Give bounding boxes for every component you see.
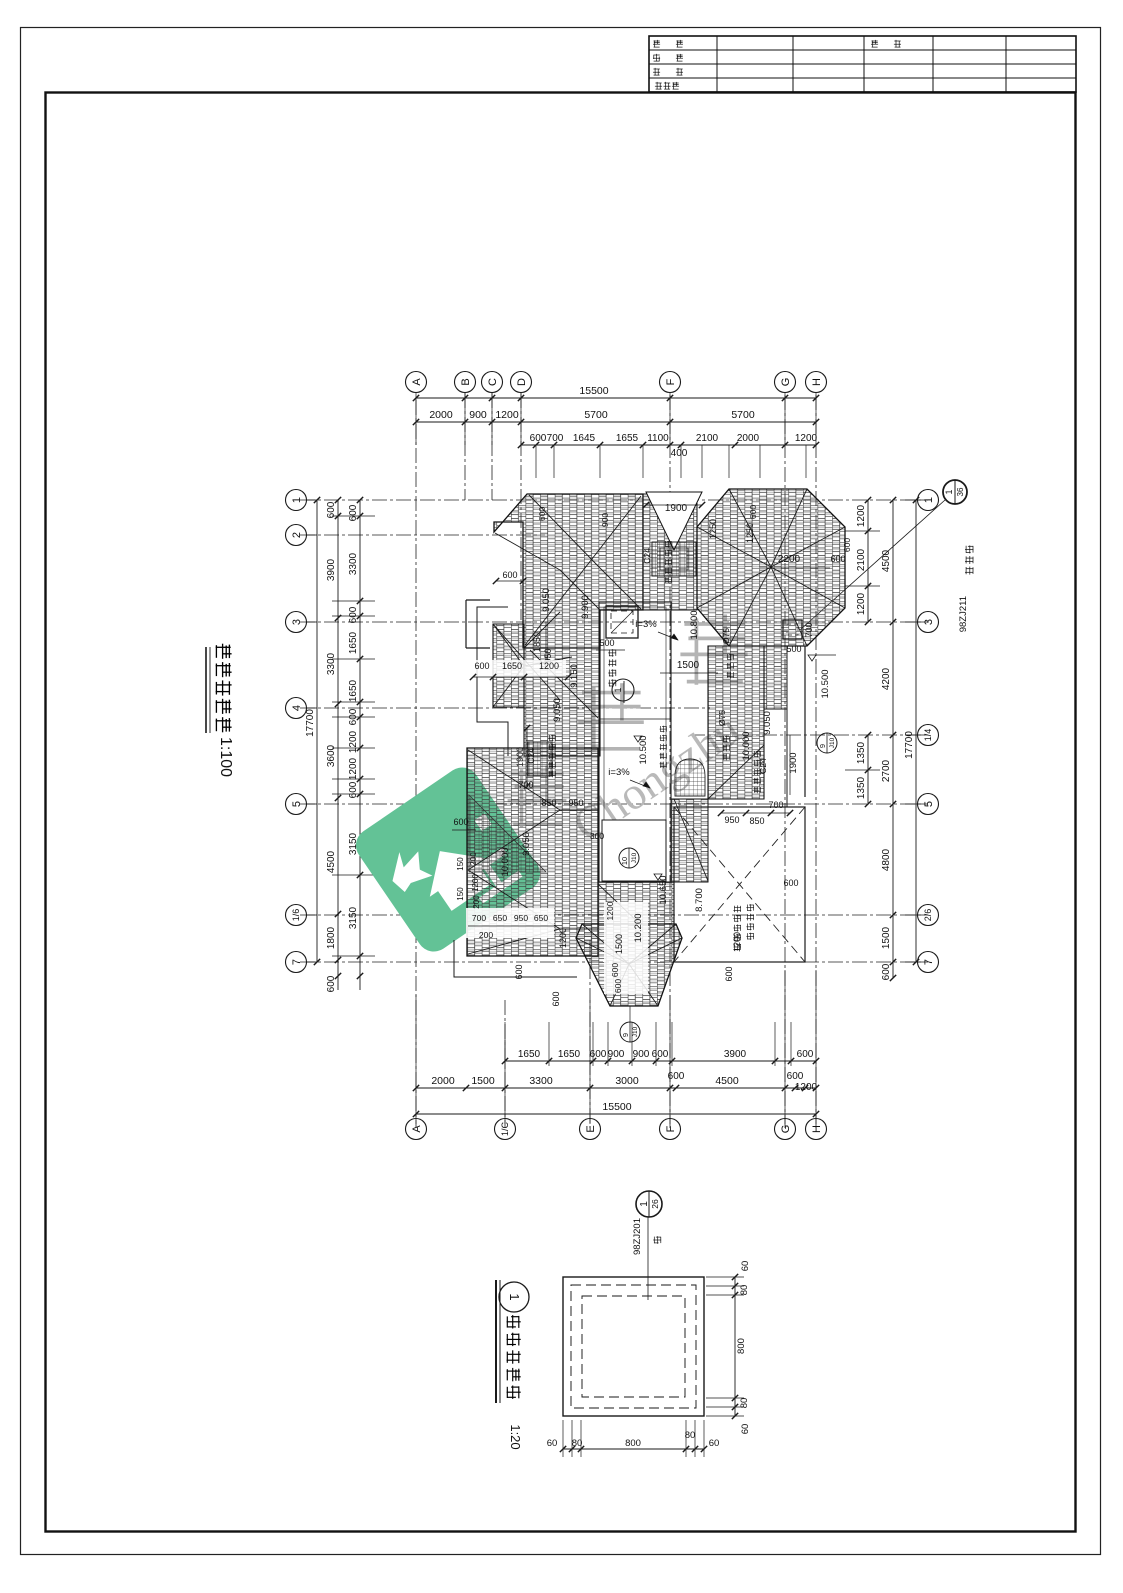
svg-text:J10: J10	[631, 852, 638, 863]
svg-text:600: 600	[783, 878, 798, 888]
svg-text:900: 900	[633, 1049, 650, 1060]
svg-text:5: 5	[291, 801, 303, 807]
svg-text:36: 36	[956, 487, 965, 496]
svg-text:3: 3	[291, 619, 303, 625]
svg-text:950: 950	[568, 798, 583, 808]
svg-text:600: 600	[514, 964, 524, 979]
svg-text:1:20: 1:20	[508, 1424, 523, 1449]
svg-text:Ø75: Ø75	[721, 628, 731, 644]
svg-text:200: 200	[472, 895, 481, 909]
svg-text:3150: 3150	[348, 906, 359, 929]
svg-text:600: 600	[502, 570, 517, 580]
svg-text:600: 600	[348, 504, 359, 521]
svg-text:4500: 4500	[881, 549, 892, 572]
svg-text:3300: 3300	[348, 552, 359, 575]
svg-text:1: 1	[944, 489, 954, 494]
svg-text:850: 850	[749, 816, 764, 826]
svg-text:900: 900	[469, 409, 487, 421]
svg-text:400: 400	[671, 448, 688, 459]
svg-text:4800: 4800	[881, 848, 892, 871]
svg-text:7: 7	[291, 959, 303, 965]
svg-text:15500: 15500	[579, 385, 608, 397]
svg-text:3300: 3300	[529, 1075, 553, 1087]
svg-text:1650: 1650	[558, 1049, 581, 1060]
svg-text:i=3%: i=3%	[635, 619, 657, 630]
svg-text:2100: 2100	[696, 433, 719, 444]
svg-text:2: 2	[291, 532, 303, 538]
svg-text:4200: 4200	[881, 667, 892, 690]
svg-text:4500: 4500	[715, 1075, 739, 1087]
svg-text:9.050: 9.050	[762, 711, 773, 735]
svg-text:1200: 1200	[856, 504, 867, 527]
svg-text:10.200: 10.200	[633, 913, 644, 942]
svg-text:600: 600	[797, 1049, 814, 1060]
svg-text:1200: 1200	[856, 592, 867, 615]
svg-text:C24: C24	[642, 548, 652, 564]
svg-text:900: 900	[608, 1049, 625, 1060]
svg-text:1650: 1650	[502, 661, 522, 671]
svg-text:10.500: 10.500	[820, 669, 831, 698]
svg-text:H: H	[811, 1125, 823, 1133]
svg-text:150: 150	[456, 887, 465, 901]
svg-text:1250: 1250	[745, 523, 755, 543]
svg-text:650: 650	[493, 913, 507, 923]
svg-text:1200: 1200	[348, 730, 359, 753]
svg-text:800: 800	[736, 1338, 747, 1354]
svg-text:1: 1	[613, 687, 623, 692]
svg-text:850: 850	[541, 798, 556, 808]
svg-text:2700: 2700	[881, 759, 892, 782]
svg-text:10.000: 10.000	[500, 847, 511, 876]
svg-text:500: 500	[599, 638, 614, 648]
svg-text:10.000: 10.000	[741, 731, 752, 760]
svg-text:F: F	[665, 378, 677, 385]
svg-text:98ZJ201: 98ZJ201	[632, 1218, 643, 1255]
svg-text:1500: 1500	[471, 1075, 495, 1087]
svg-text:9.900: 9.900	[580, 595, 591, 619]
svg-text:G: G	[780, 378, 792, 387]
svg-text:700: 700	[472, 913, 486, 923]
svg-text:600: 600	[474, 661, 489, 671]
svg-text:1655: 1655	[616, 433, 639, 444]
svg-text:3300: 3300	[326, 652, 337, 675]
svg-text:J10: J10	[829, 737, 836, 748]
svg-text:B: B	[460, 378, 472, 385]
svg-text:600: 600	[348, 781, 359, 798]
svg-text:1200: 1200	[348, 757, 359, 780]
svg-text:1200: 1200	[605, 901, 615, 920]
svg-text:3900: 3900	[724, 1049, 747, 1060]
svg-text:200: 200	[469, 852, 478, 866]
svg-text:10: 10	[620, 857, 629, 865]
svg-text:G: G	[780, 1125, 792, 1134]
svg-text:Ø75: Ø75	[717, 710, 727, 726]
svg-text:A: A	[411, 378, 423, 386]
svg-text:600: 600	[453, 817, 468, 827]
svg-text:60: 60	[709, 1438, 720, 1449]
svg-text:60: 60	[547, 1438, 558, 1449]
svg-text:1500: 1500	[614, 934, 624, 954]
svg-text:600: 600	[610, 963, 620, 977]
svg-text:5700: 5700	[731, 409, 755, 421]
svg-text:1200: 1200	[558, 928, 568, 948]
svg-text:A: A	[411, 1125, 423, 1133]
svg-text:9.050: 9.050	[541, 588, 552, 612]
svg-text:600: 600	[830, 554, 845, 564]
svg-text:700: 700	[518, 780, 533, 790]
svg-text:J10: J10	[632, 1026, 639, 1037]
svg-text:600: 600	[551, 991, 561, 1006]
svg-text:80: 80	[572, 1438, 583, 1449]
svg-text:150: 150	[456, 857, 465, 871]
svg-text:9.050: 9.050	[552, 698, 563, 722]
svg-text:17700: 17700	[305, 709, 316, 737]
svg-text:80: 80	[739, 1398, 750, 1409]
svg-text:C24: C24	[526, 748, 536, 764]
svg-text:1100: 1100	[647, 433, 669, 444]
svg-text:9: 9	[621, 1033, 630, 1037]
svg-text:1:100: 1:100	[217, 737, 234, 777]
svg-text:60: 60	[740, 1261, 751, 1272]
svg-text:5700: 5700	[584, 409, 608, 421]
svg-text:4500: 4500	[326, 850, 337, 873]
svg-text:1: 1	[639, 1201, 650, 1207]
svg-text:1500: 1500	[881, 926, 892, 949]
svg-text:1650: 1650	[348, 679, 359, 702]
svg-text:600: 600	[348, 606, 359, 623]
svg-text:950: 950	[514, 913, 528, 923]
svg-text:1: 1	[507, 1293, 522, 1300]
svg-text:1200: 1200	[795, 1082, 818, 1093]
svg-text:2100: 2100	[856, 548, 867, 571]
svg-text:600: 600	[881, 963, 892, 980]
svg-text:H: H	[811, 378, 823, 386]
svg-text:3900: 3900	[326, 558, 337, 581]
svg-text:1/6: 1/6	[291, 909, 301, 922]
svg-text:1800: 1800	[326, 926, 337, 949]
svg-text:650: 650	[534, 913, 548, 923]
svg-text:15500: 15500	[602, 1101, 631, 1113]
svg-text:1350: 1350	[856, 741, 867, 764]
svg-text:700: 700	[768, 800, 783, 810]
svg-text:98ZJ211: 98ZJ211	[958, 596, 969, 632]
svg-text:80: 80	[739, 1285, 750, 1296]
svg-text:700: 700	[804, 622, 814, 637]
svg-text:1: 1	[291, 497, 303, 503]
svg-text:1200: 1200	[539, 661, 559, 671]
svg-text:600: 600	[613, 979, 623, 993]
svg-text:700: 700	[547, 433, 564, 444]
svg-text:2000: 2000	[431, 1075, 455, 1087]
svg-text:800: 800	[625, 1438, 641, 1449]
svg-text:D: D	[516, 378, 528, 386]
svg-text:E: E	[585, 1125, 597, 1132]
svg-text:i=3%: i=3%	[608, 767, 630, 778]
svg-text:1250: 1250	[708, 519, 718, 539]
svg-text:200: 200	[479, 930, 493, 940]
svg-text:4: 4	[291, 705, 303, 711]
svg-text:600: 600	[724, 966, 734, 981]
svg-text:1200: 1200	[795, 433, 818, 444]
svg-text:600: 600	[652, 1049, 669, 1060]
svg-text:300: 300	[590, 831, 604, 841]
svg-text:600: 600	[590, 1049, 607, 1060]
svg-text:1650: 1650	[348, 631, 359, 654]
svg-text:1350: 1350	[856, 776, 867, 799]
svg-text:10.800: 10.800	[689, 610, 700, 639]
svg-text:2000: 2000	[429, 409, 453, 421]
svg-text:600: 600	[530, 433, 547, 444]
svg-text:C: C	[487, 378, 499, 386]
svg-text:60: 60	[740, 1424, 751, 1435]
svg-text:26: 26	[650, 1199, 660, 1209]
svg-text:1650: 1650	[518, 1049, 541, 1060]
svg-text:80: 80	[685, 1430, 696, 1441]
svg-text:1500: 1500	[677, 660, 700, 671]
svg-text:10.500: 10.500	[638, 735, 649, 764]
svg-text:F: F	[665, 1125, 677, 1132]
svg-text:600: 600	[748, 505, 758, 519]
svg-text:9.050: 9.050	[521, 832, 532, 856]
svg-text:600: 600	[842, 538, 852, 552]
svg-text:1645: 1645	[573, 433, 596, 444]
svg-text:2200: 2200	[778, 554, 801, 565]
svg-text:1850: 1850	[532, 632, 542, 652]
svg-text:900: 900	[600, 513, 610, 527]
svg-text:950: 950	[724, 815, 739, 825]
svg-text:9: 9	[818, 744, 827, 748]
svg-text:600: 600	[537, 507, 547, 521]
svg-text:3000: 3000	[615, 1075, 639, 1087]
svg-text:500: 500	[786, 644, 801, 654]
svg-text:2000: 2000	[737, 433, 760, 444]
svg-text:600: 600	[326, 975, 337, 992]
svg-text:9.150: 9.150	[569, 664, 580, 688]
svg-text:1200: 1200	[471, 874, 480, 892]
svg-text:8.700: 8.700	[694, 888, 705, 912]
svg-text:10.650: 10.650	[658, 875, 669, 904]
svg-text:1200: 1200	[495, 409, 519, 421]
svg-text:600: 600	[787, 1071, 804, 1082]
